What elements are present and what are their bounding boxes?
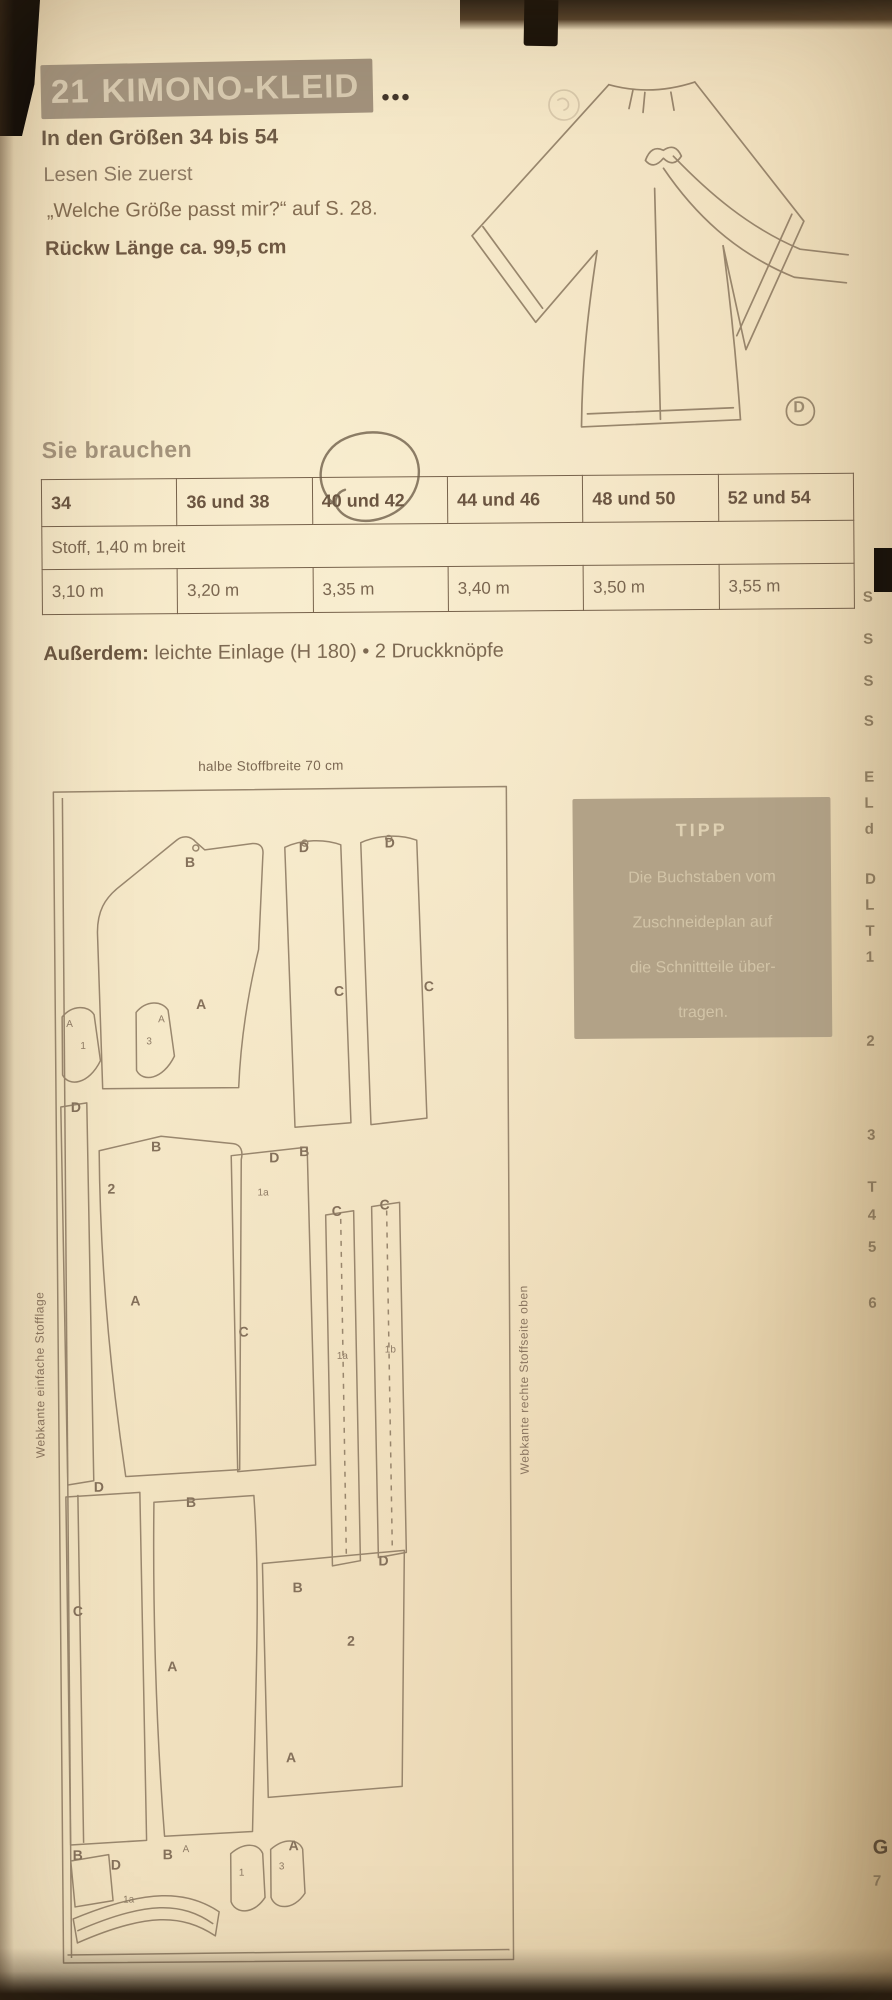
dress-technical-drawing bbox=[471, 81, 850, 428]
cutting-layout-diagram bbox=[53, 787, 515, 1964]
line-art bbox=[0, 0, 892, 2000]
view-label-circle bbox=[786, 397, 814, 425]
pencil-circle-annotation bbox=[320, 432, 419, 521]
magazine-page-photo: 21 KIMONO-KLEID ●●● In den Größen 34 bis… bbox=[0, 0, 892, 2000]
page-content: 21 KIMONO-KLEID ●●● In den Größen 34 bis… bbox=[0, 0, 892, 2000]
